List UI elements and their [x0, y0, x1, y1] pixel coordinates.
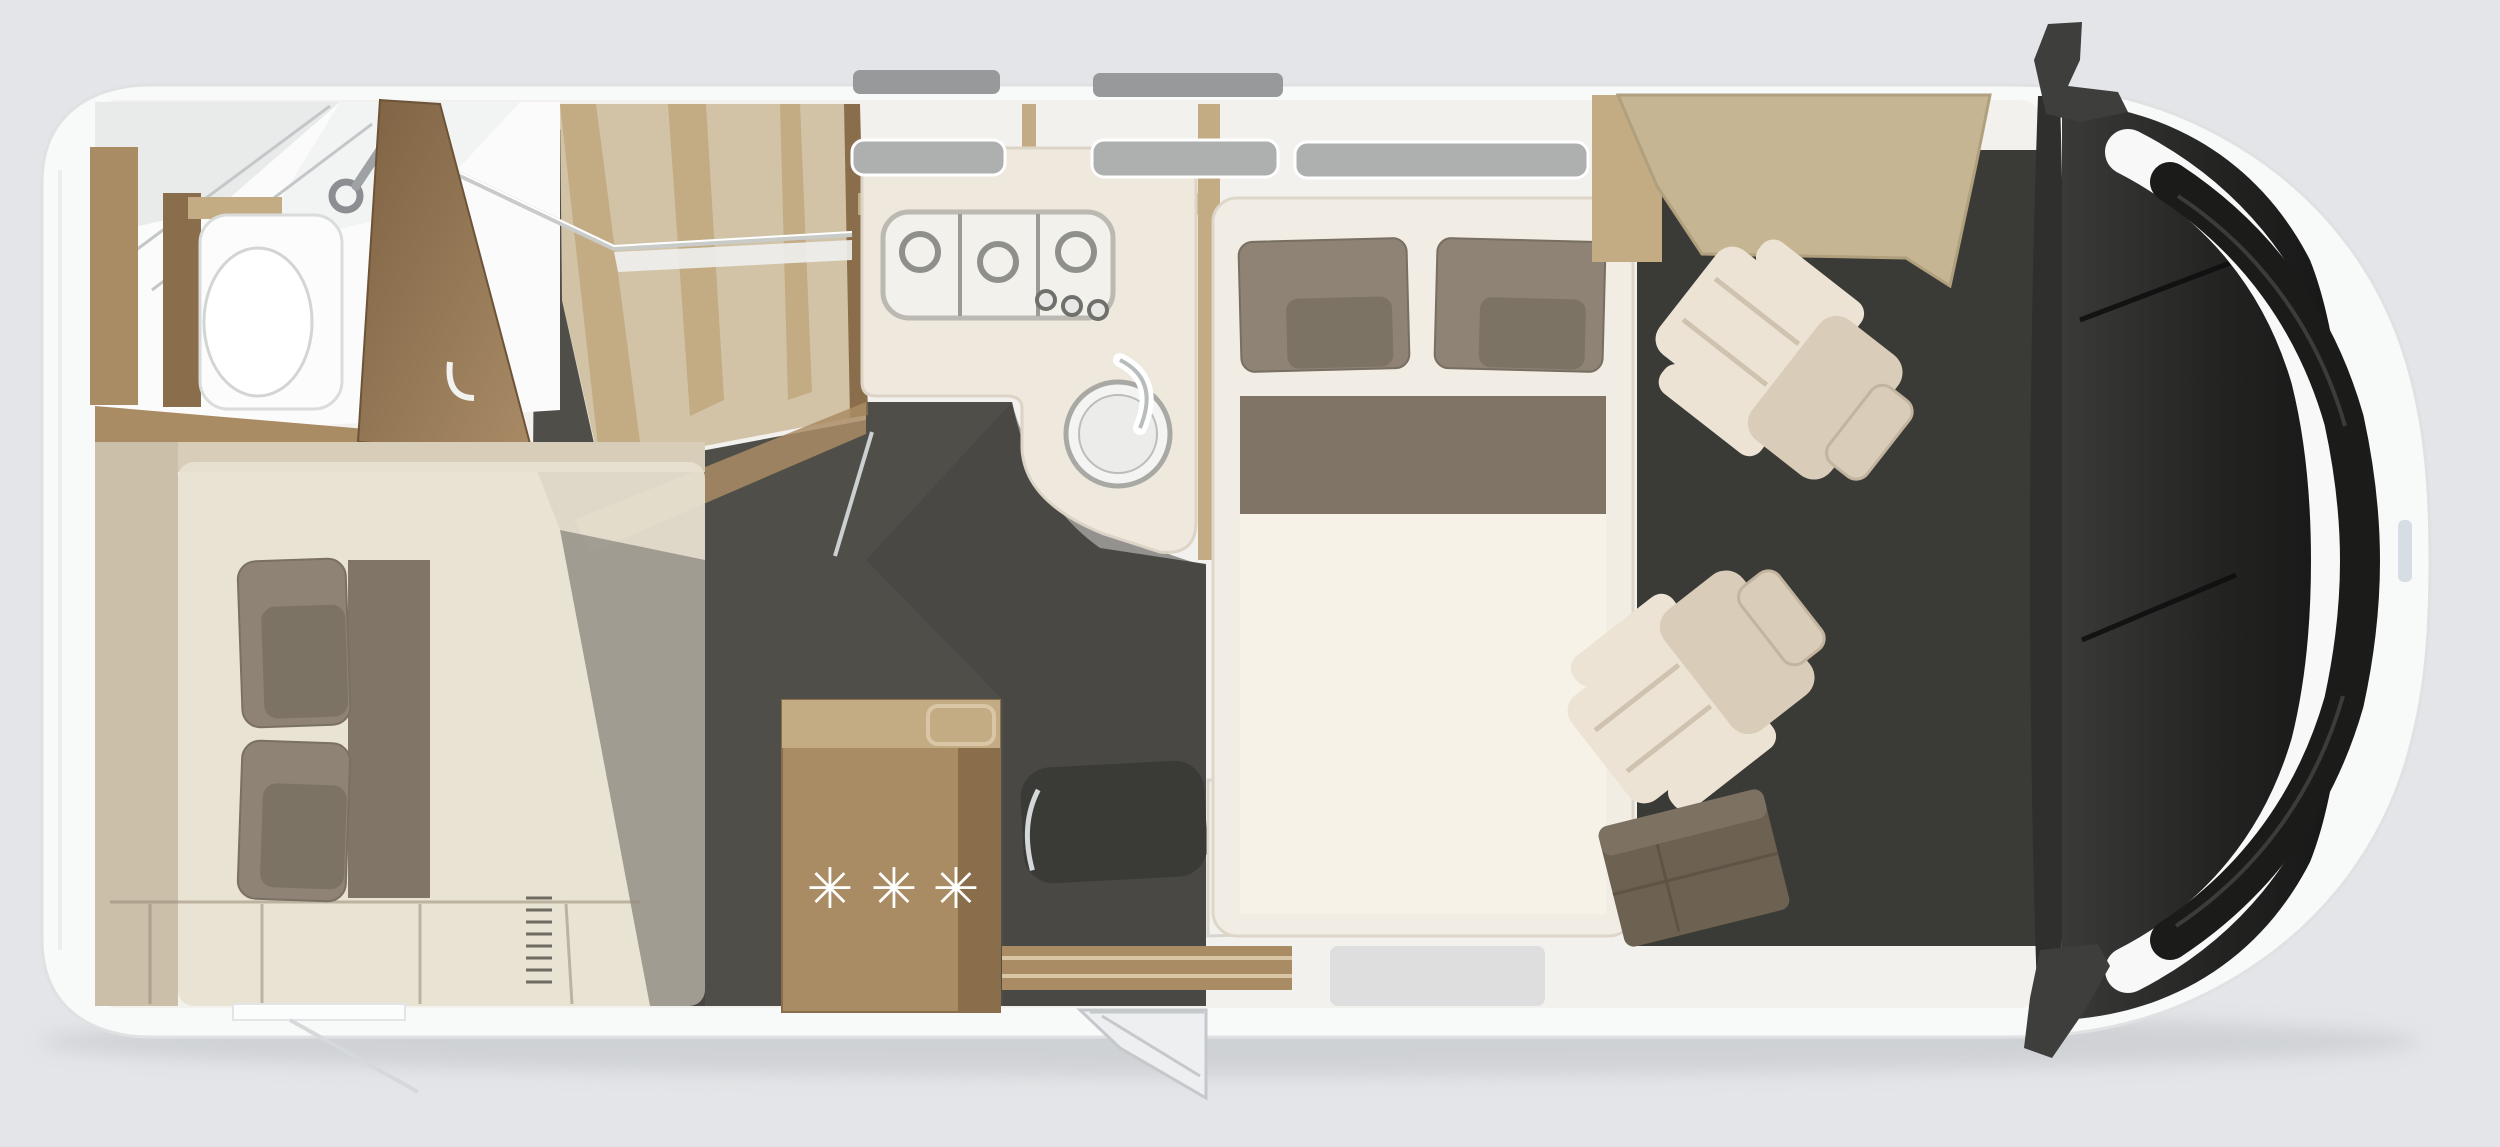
toilet	[200, 215, 342, 409]
bathroom-post	[163, 193, 201, 407]
island-bed-pillow	[1434, 238, 1605, 372]
rear-bed-pillow	[237, 558, 351, 728]
freezer-symbol: ✳	[807, 857, 854, 922]
window-slots	[852, 140, 1588, 178]
entry-threshold	[1002, 946, 1292, 990]
stove	[883, 212, 1113, 319]
rear-step-shadow-bar	[233, 1004, 405, 1020]
bed-side-bench	[95, 442, 178, 1006]
window-slot	[1092, 140, 1278, 177]
stove-knob	[1037, 291, 1055, 309]
roof-window-bar	[1093, 73, 1283, 97]
floor-mat	[1330, 946, 1545, 1006]
island-bed	[1213, 198, 1633, 936]
roof-window-bar	[853, 70, 1000, 94]
island-bed-mattress	[1240, 514, 1606, 914]
stove-knob	[1063, 297, 1081, 315]
motorhome-floorplan: ✳ ✳ ✳	[0, 0, 2500, 1147]
fridge-cabinet: ✳ ✳ ✳	[782, 700, 1000, 1012]
bed-runner	[348, 560, 430, 898]
window-slot	[852, 140, 1005, 175]
freezer-symbol: ✳	[933, 857, 980, 922]
island-bed-pillow	[1238, 238, 1409, 372]
entry-seat	[1019, 759, 1209, 884]
bathroom-wall-wood	[90, 147, 138, 405]
front-glint	[2398, 520, 2412, 582]
rear-bed	[95, 442, 705, 1092]
dashboard	[2030, 96, 2066, 1022]
island-bed-blanket	[1240, 396, 1606, 514]
floorplan-canvas: ✳ ✳ ✳	[0, 0, 2500, 1147]
rear-bed-pillow	[237, 740, 350, 902]
freezer-symbol: ✳	[871, 857, 918, 922]
toilet-seat	[204, 248, 312, 396]
window-slot	[1295, 142, 1588, 178]
stove-knob	[1089, 301, 1107, 319]
